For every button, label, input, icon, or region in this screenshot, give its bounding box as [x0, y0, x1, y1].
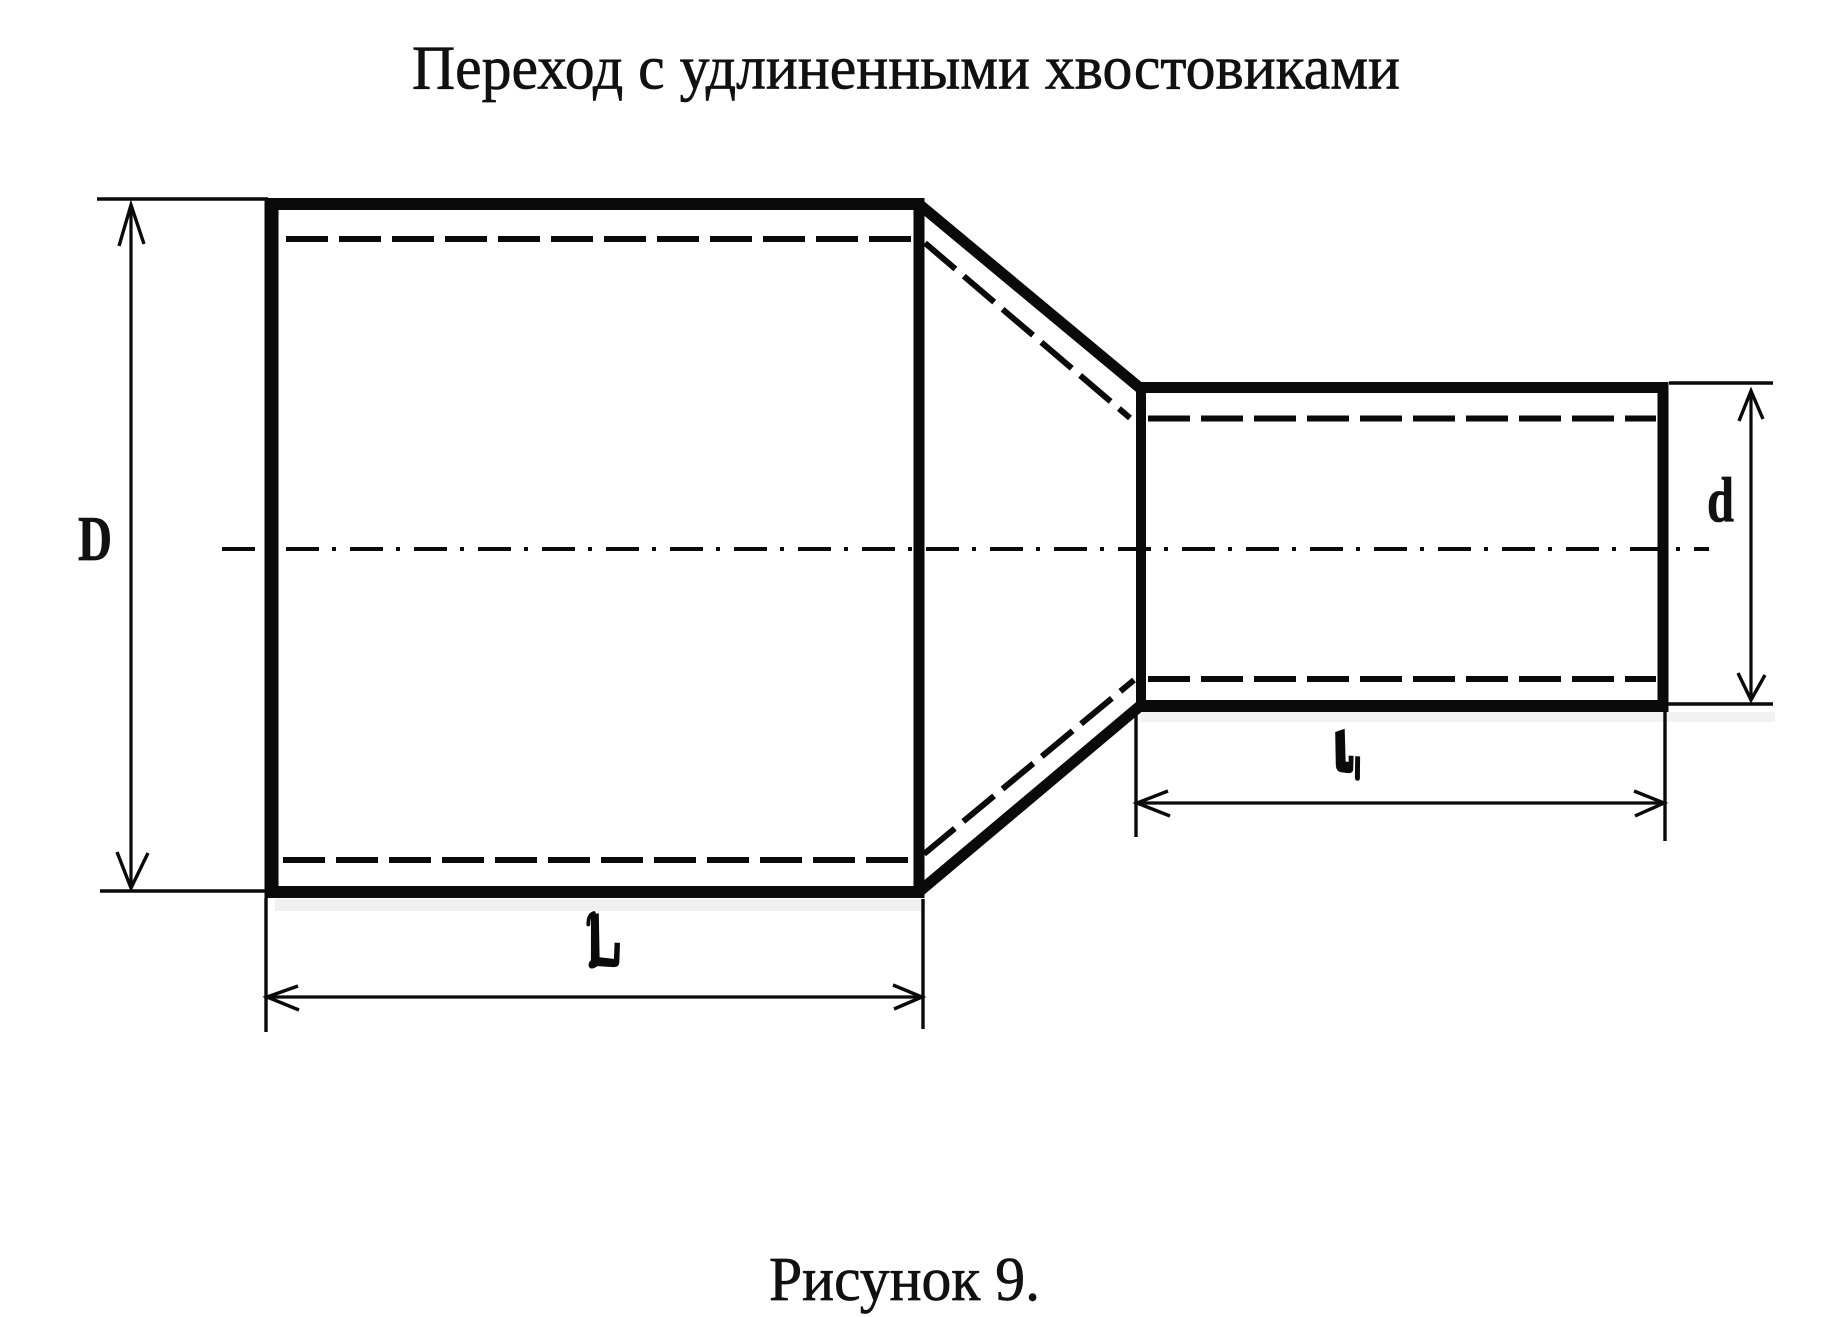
svg-text:Переход с удлиненными хвостови: Переход с удлиненными хвостовиками [412, 33, 1400, 103]
svg-text:d: d [1707, 465, 1734, 535]
svg-text:Рисунок 9.: Рисунок 9. [769, 1246, 1040, 1314]
svg-text:D: D [78, 503, 112, 574]
